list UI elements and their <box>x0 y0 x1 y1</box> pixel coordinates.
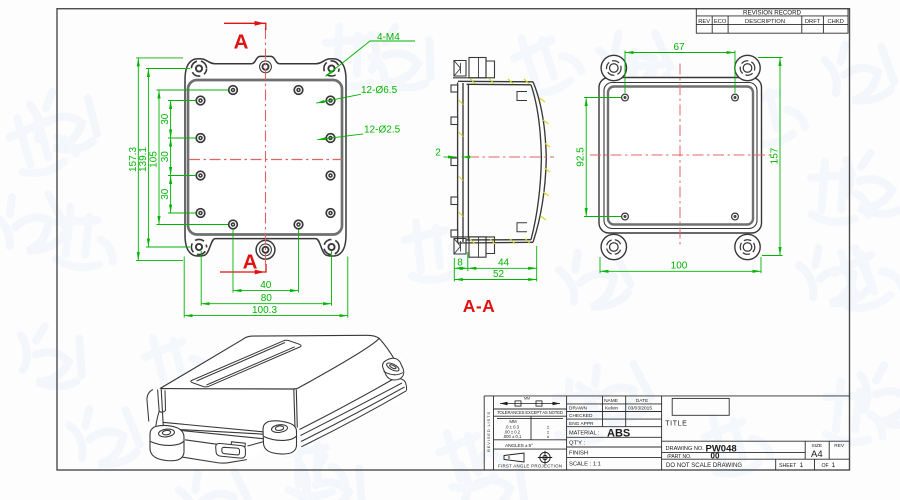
svg-text:DRAWING NO.: DRAWING NO. <box>666 446 705 452</box>
svg-text:2: 2 <box>435 148 441 159</box>
svg-text:DRAWN: DRAWN <box>569 406 587 412</box>
svg-text:FIRST ANGLE PROJECTION: FIRST ANGLE PROJECTION <box>498 463 562 468</box>
svg-text:30: 30 <box>160 151 171 163</box>
svg-text:67: 67 <box>673 42 685 53</box>
svg-text:DO NOT SCALE DRAWING: DO NOT SCALE DRAWING <box>666 463 742 469</box>
svg-text:30: 30 <box>160 113 171 125</box>
svg-text:12-Ø2.5: 12-Ø2.5 <box>364 125 401 136</box>
svg-text:.000 ± 0.1: .000 ± 0.1 <box>503 434 522 439</box>
svg-text:MM: MM <box>524 397 530 401</box>
svg-text:8: 8 <box>457 258 463 269</box>
svg-text:ABS: ABS <box>607 428 630 440</box>
svg-text:NAME: NAME <box>604 398 618 404</box>
svg-text:80: 80 <box>261 293 273 304</box>
svg-text:Kelvin: Kelvin <box>605 406 618 412</box>
svg-text:105: 105 <box>149 151 160 168</box>
svg-text:SIZE: SIZE <box>811 443 822 449</box>
svg-text:92.5: 92.5 <box>576 147 587 167</box>
svg-text:ENG APPR: ENG APPR <box>569 421 594 427</box>
svg-text:DATE: DATE <box>636 398 648 404</box>
svg-text:SCALE : 1:1: SCALE : 1:1 <box>569 462 601 468</box>
svg-text:FINISH: FINISH <box>569 451 588 457</box>
svg-text:/PART NO.: /PART NO. <box>667 454 691 460</box>
svg-text:ANGLES ± 5°: ANGLES ± 5° <box>505 443 533 449</box>
svg-text:A-A: A-A <box>463 296 496 316</box>
svg-text:CHKD: CHKD <box>827 19 843 25</box>
svg-text:52: 52 <box>493 269 505 280</box>
svg-text:4-M4: 4-M4 <box>377 32 400 43</box>
svg-text:TITLE: TITLE <box>665 421 687 428</box>
svg-text:DRFT: DRFT <box>805 19 821 25</box>
svg-text:CHECKED: CHECKED <box>569 413 593 419</box>
svg-text:1: 1 <box>832 462 836 469</box>
svg-text:MM: MM <box>509 419 517 424</box>
svg-text:OF: OF <box>822 463 829 469</box>
svg-text:157: 157 <box>770 147 781 164</box>
svg-text:00: 00 <box>711 452 720 461</box>
svg-text:03/03/2015: 03/03/2015 <box>628 406 652 412</box>
svg-text:A: A <box>243 251 258 274</box>
svg-text:TOLERANCES EXCEPT AS NOTED: TOLERANCES EXCEPT AS NOTED <box>497 410 563 415</box>
svg-text:MATERIAL :: MATERIAL : <box>569 431 600 437</box>
svg-text:REV: REV <box>698 19 710 25</box>
svg-text:40: 40 <box>260 280 272 291</box>
svg-text:DESCRIPTION: DESCRIPTION <box>745 19 785 25</box>
svg-text:100.3: 100.3 <box>252 305 277 316</box>
svg-text:SHEET: SHEET <box>779 463 797 469</box>
svg-text:ECO: ECO <box>714 19 727 25</box>
svg-text:A: A <box>234 31 249 54</box>
svg-text:30: 30 <box>160 188 171 200</box>
svg-text:REVISION RECORD: REVISION RECORD <box>743 10 802 17</box>
svg-text:A4: A4 <box>811 449 823 460</box>
svg-text:REV: REV <box>834 443 845 449</box>
svg-text:157.3: 157.3 <box>128 147 139 172</box>
svg-text:139.1: 139.1 <box>138 147 149 172</box>
svg-text:REVISED LISTS: REVISED LISTS <box>486 412 491 452</box>
svg-text:1: 1 <box>800 462 804 469</box>
svg-text:QT'Y :: QT'Y : <box>569 441 586 447</box>
svg-text:100: 100 <box>671 261 688 272</box>
svg-text:12-Ø6.5: 12-Ø6.5 <box>361 85 398 96</box>
svg-text:44: 44 <box>498 258 510 269</box>
